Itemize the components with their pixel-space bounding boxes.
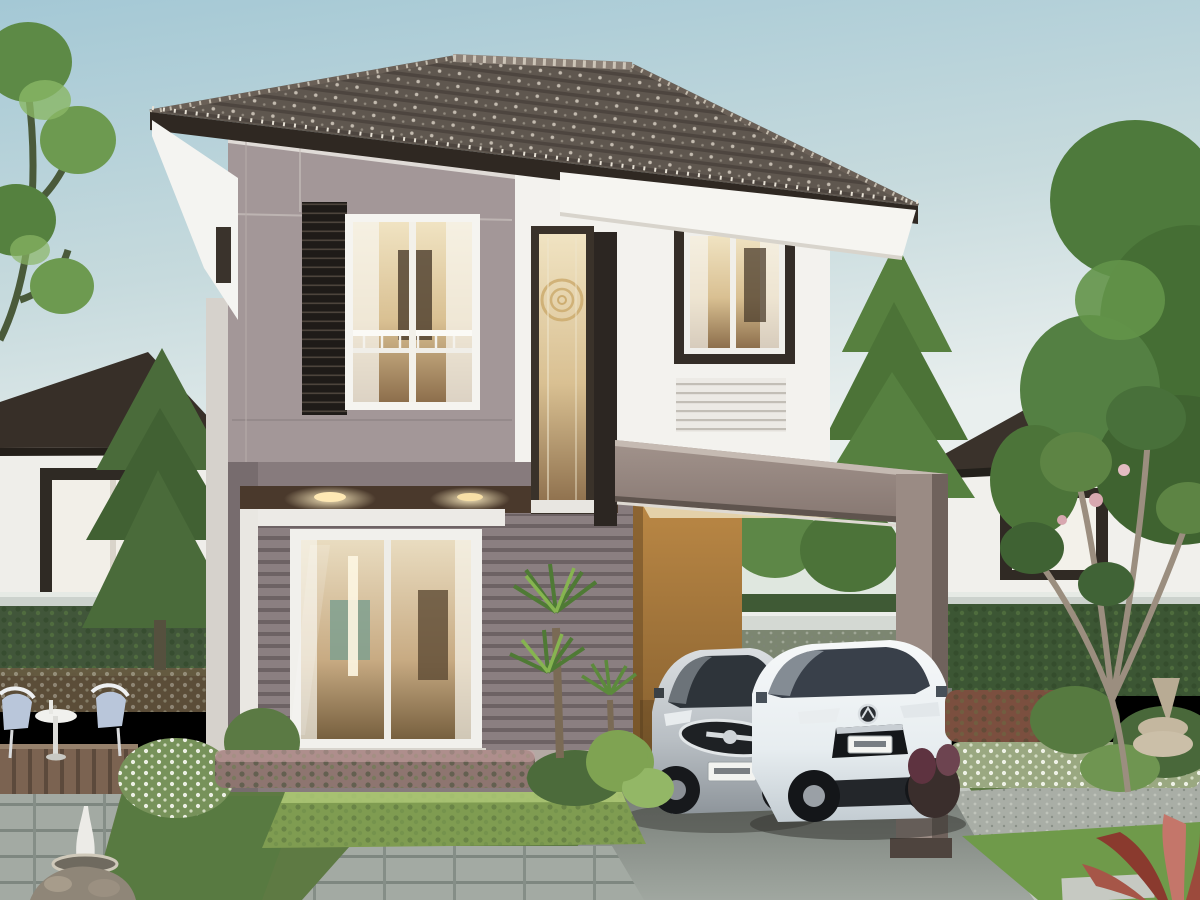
louvre-shutter <box>302 202 347 415</box>
frangipani-blossom <box>1089 493 1103 507</box>
suv-mirror-left <box>756 692 767 703</box>
deck-edge <box>0 744 138 749</box>
window-mullion <box>409 222 416 402</box>
upper-window-left <box>345 214 480 410</box>
suv-mirror-right <box>936 686 947 697</box>
wall-vent-louvre <box>676 378 786 432</box>
right-garden <box>945 678 1200 792</box>
chair-left <box>2 694 32 730</box>
post-base <box>890 838 952 858</box>
dark-accent-strip <box>594 232 617 526</box>
stone-stack-base <box>1133 731 1193 757</box>
door-top-trim <box>242 509 505 526</box>
door-curtain-right <box>455 540 471 739</box>
chair-right <box>96 692 126 728</box>
curtain-left <box>353 222 379 402</box>
timber-deck <box>0 744 138 794</box>
sedan-plate-smudge <box>714 768 750 774</box>
door-stile <box>384 540 391 739</box>
table-bottle <box>49 700 53 714</box>
sedan-mirror <box>654 688 664 698</box>
curtain-right <box>446 222 472 402</box>
sedan-emblem <box>723 730 737 744</box>
stair-window <box>531 226 617 526</box>
left-corner-wall <box>206 298 230 768</box>
interior-hall-light <box>348 556 358 676</box>
house-photo <box>0 0 1200 900</box>
stair-window-sill <box>531 500 594 513</box>
downpipe <box>216 227 231 283</box>
interior-cabinet <box>418 590 448 680</box>
suv-plate-smudge <box>854 741 886 747</box>
centre-path <box>302 846 644 900</box>
bush-by-carport <box>588 730 648 782</box>
